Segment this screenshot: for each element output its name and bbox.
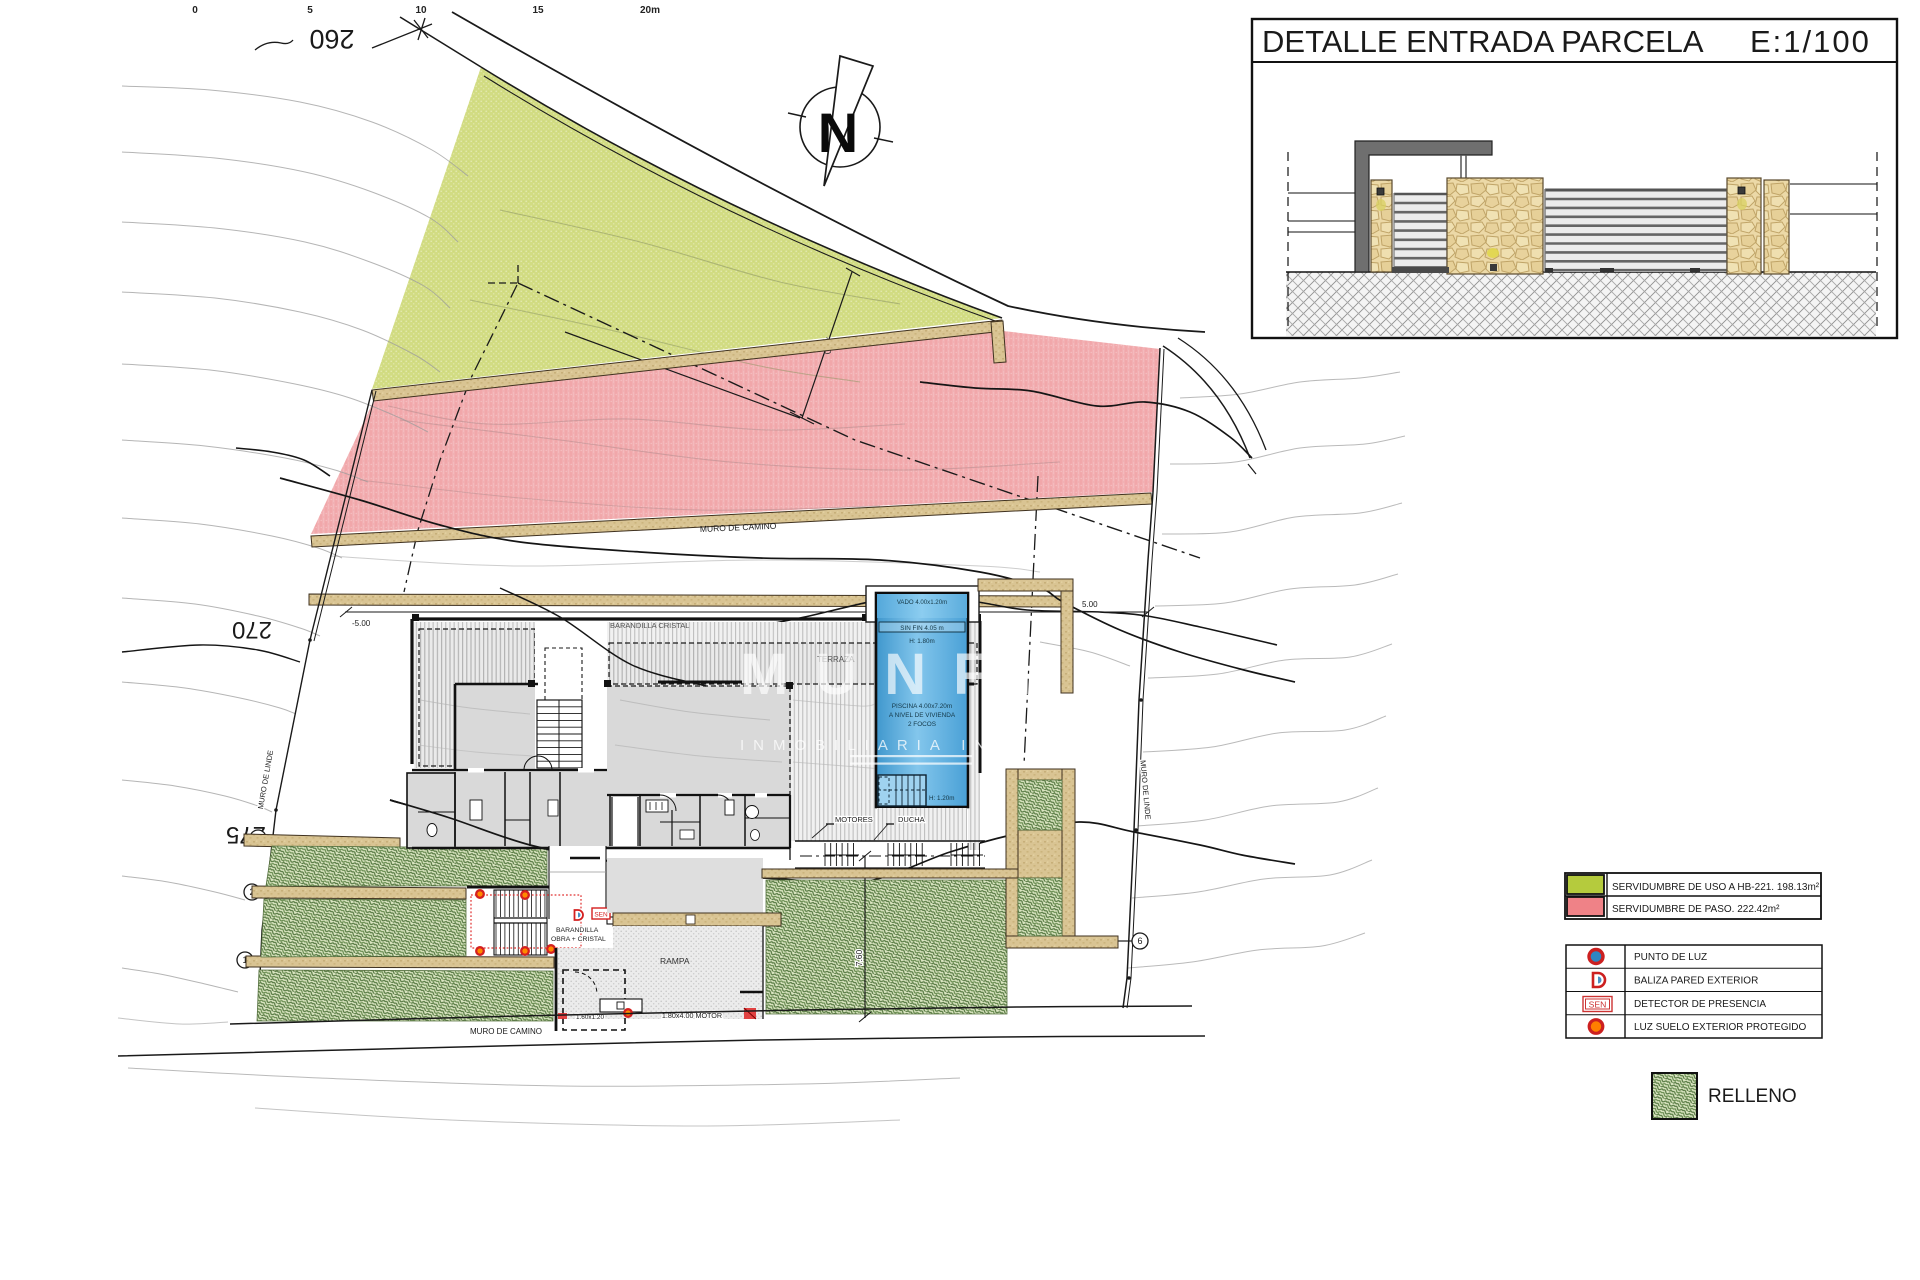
svg-text:15: 15: [532, 5, 544, 16]
svg-text:INMOBILIARIA INM: INMOBILIARIA INM: [740, 737, 1016, 754]
svg-text:DETALLE ENTRADA PARCELA: DETALLE ENTRADA PARCELA: [1262, 24, 1704, 59]
svg-text:RAMPA: RAMPA: [660, 956, 690, 966]
svg-text:PUNTO DE LUZ: PUNTO DE LUZ: [1634, 952, 1707, 963]
svg-text:BALIZA PARED EXTERIOR: BALIZA PARED EXTERIOR: [1634, 976, 1758, 987]
svg-text:10: 10: [415, 5, 427, 16]
svg-text:RELLENO: RELLENO: [1708, 1086, 1797, 1107]
svg-text:BARANDILLA CRISTAL: BARANDILLA CRISTAL: [610, 621, 689, 630]
svg-text:SEN: SEN: [594, 912, 608, 919]
svg-text:7.60: 7.60: [854, 949, 864, 966]
svg-text:N: N: [818, 101, 858, 164]
svg-text:MUNFI: MUNFI: [740, 642, 1059, 707]
svg-text:A NIVEL DE VIVIENDA: A NIVEL DE VIVIENDA: [889, 712, 956, 719]
svg-text:6: 6: [1137, 936, 1142, 946]
svg-text:LUZ SUELO EXTERIOR PROTEGIDO: LUZ SUELO EXTERIOR PROTEGIDO: [1634, 1022, 1806, 1033]
svg-text:-5.00: -5.00: [352, 619, 371, 628]
svg-text:E:1/100: E:1/100: [1750, 24, 1871, 59]
svg-text:2 FOCOS: 2 FOCOS: [908, 721, 936, 728]
svg-text:DETECTOR DE PRESENCIA: DETECTOR DE PRESENCIA: [1634, 999, 1766, 1010]
svg-text:SERVIDUMBRE DE USO A HB-221. 1: SERVIDUMBRE DE USO A HB-221. 198.13m²: [1612, 882, 1820, 893]
svg-text:OBRA + CRISTAL: OBRA + CRISTAL: [551, 936, 606, 943]
svg-text:MURO DE CAMINO: MURO DE CAMINO: [470, 1027, 542, 1036]
svg-text:MOTORES: MOTORES: [835, 815, 873, 824]
svg-text:260: 260: [309, 24, 354, 54]
svg-text:SEN: SEN: [1589, 1000, 1607, 1010]
svg-text:VADO 4.00x1.20m: VADO 4.00x1.20m: [897, 599, 947, 606]
svg-text:20m: 20m: [640, 5, 660, 16]
svg-text:DUCHA: DUCHA: [898, 815, 925, 824]
svg-text:5: 5: [307, 5, 313, 16]
svg-text:BARANDILLA: BARANDILLA: [556, 927, 599, 934]
svg-text:270: 270: [232, 616, 272, 643]
svg-text:SERVIDUMBRE DE PASO. 222.42m: SERVIDUMBRE DE PASO. 222.42m²: [1612, 904, 1780, 915]
svg-text:0: 0: [192, 5, 198, 16]
svg-text:5.00: 5.00: [1082, 600, 1098, 609]
svg-text:H: 1.20m: H: 1.20m: [929, 795, 955, 802]
svg-text:SIN FIN 4.05 m: SIN FIN 4.05 m: [900, 625, 943, 632]
